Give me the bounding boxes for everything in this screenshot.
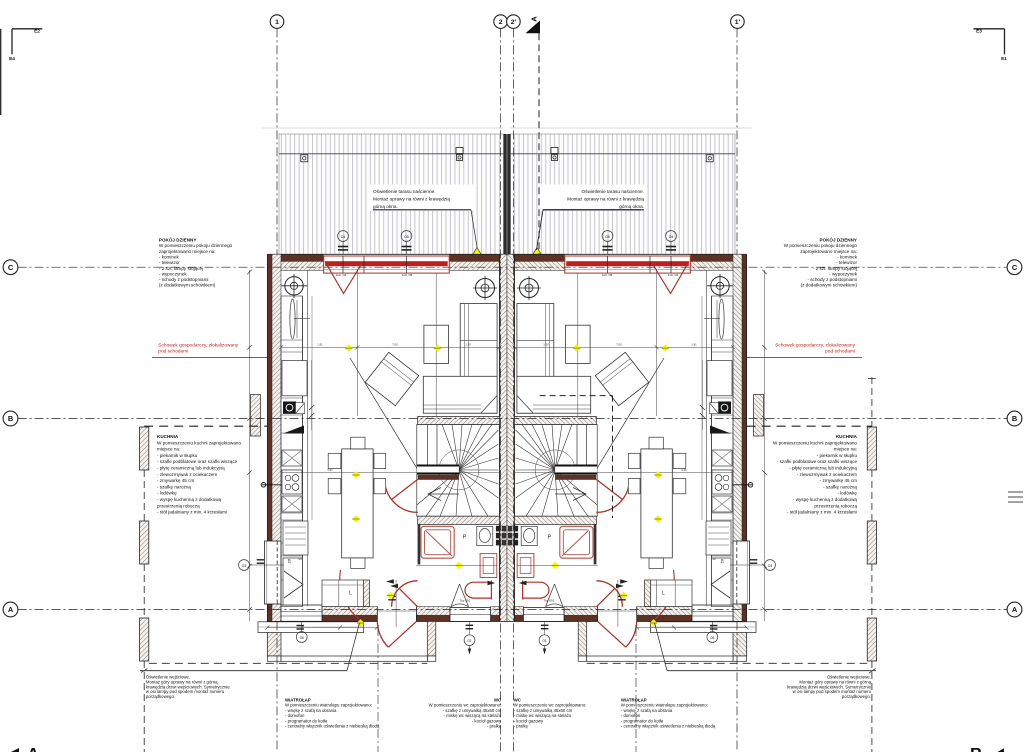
svg-text:7.00: 7.00 bbox=[616, 343, 622, 347]
svg-text:- pralkę: - pralkę bbox=[514, 724, 529, 729]
svg-text:O5: O5 bbox=[404, 235, 409, 239]
svg-text:L: L bbox=[662, 591, 665, 597]
svg-text:B: B bbox=[970, 745, 982, 752]
svg-text:POKÓJ DZIENNY: POKÓJ DZIENNY bbox=[159, 236, 197, 243]
svg-text:Typ S01: Typ S01 bbox=[544, 599, 555, 603]
svg-text:przestrzenią roboczą: przestrzenią roboczą bbox=[814, 503, 857, 508]
svg-text:O1: O1 bbox=[467, 639, 471, 643]
svg-text:KUCHNIA: KUCHNIA bbox=[836, 434, 858, 439]
svg-text:- 2 szt. lampy stojącej: - 2 szt. lampy stojącej bbox=[159, 266, 203, 271]
svg-text:- wypoczynek: - wypoczynek bbox=[159, 271, 188, 276]
svg-text:górną okna.: górną okna. bbox=[373, 204, 398, 209]
svg-text:Schowek gospodarczy, zlokalizo: Schowek gospodarczy, zlokalizowany bbox=[775, 343, 855, 349]
svg-text:Montaż oprawy na równi z krawę: Montaż oprawy na równi z krawędzią bbox=[373, 196, 450, 201]
svg-text:O6: O6 bbox=[710, 636, 714, 640]
svg-text:pod schodami: pod schodami bbox=[825, 349, 855, 355]
svg-text:E1: E1 bbox=[1001, 56, 1007, 62]
svg-text:- płytę ceramiczną lub indukcy: - płytę ceramiczną lub indukcyjną bbox=[789, 466, 857, 471]
svg-text:A: A bbox=[530, 16, 539, 22]
svg-text:- stół jadalniany z min. 4 krz: - stół jadalniany z min. 4 krzesłami bbox=[787, 510, 857, 515]
svg-text:ZM: ZM bbox=[288, 558, 292, 563]
svg-text:Typ S01: Typ S01 bbox=[460, 599, 471, 603]
svg-text:A: A bbox=[8, 605, 14, 614]
svg-text:2: 2 bbox=[499, 19, 503, 26]
svg-text:- piekarnik w słupku: - piekarnik w słupku bbox=[157, 453, 198, 458]
svg-text:(z dodatkowym schowkiem): (z dodatkowym schowkiem) bbox=[801, 283, 858, 288]
svg-text:B: B bbox=[8, 414, 13, 423]
svg-text:O5: O5 bbox=[605, 235, 610, 239]
svg-text:- szafki podblatowe oraz szafk: - szafki podblatowe oraz szafki wiszące bbox=[157, 459, 238, 464]
svg-text:1': 1' bbox=[735, 19, 741, 26]
svg-text:1.50: 1.50 bbox=[543, 343, 549, 347]
svg-text:1szt. O5: 1szt. O5 bbox=[602, 273, 613, 277]
svg-text:- lodówkę: - lodówkę bbox=[837, 491, 857, 496]
svg-text:Oświetlenie tarasu naścienne.: Oświetlenie tarasu naścienne. bbox=[373, 189, 436, 194]
svg-text:- zlewozmywak z ociekaczem: - zlewozmywak z ociekaczem bbox=[157, 472, 217, 477]
svg-text:O3: O3 bbox=[242, 564, 247, 568]
svg-text:zaprojektowano miejsce na:: zaprojektowano miejsce na: bbox=[159, 249, 216, 254]
svg-text:- kominek: - kominek bbox=[837, 254, 858, 259]
svg-text:- szafkę narożną: - szafkę narożną bbox=[157, 484, 191, 489]
svg-text:- płytę ceramiczną lub indukcy: - płytę ceramiczną lub indukcyjną bbox=[157, 466, 225, 471]
svg-text:pod schodami: pod schodami bbox=[158, 349, 188, 355]
svg-text:- zlewozmywak z ociekaczem: - zlewozmywak z ociekaczem bbox=[797, 472, 857, 477]
svg-text:O4: O4 bbox=[341, 235, 346, 239]
svg-text:E4: E4 bbox=[9, 56, 15, 62]
svg-text:- lodówkę: - lodówkę bbox=[157, 491, 177, 496]
svg-text:POKÓJ DZIENNY: POKÓJ DZIENNY bbox=[819, 236, 857, 243]
svg-text:- piekarnik w słupku: - piekarnik w słupku bbox=[817, 453, 858, 458]
svg-text:- wyspę kuchenną z dodatkową: - wyspę kuchenną z dodatkową bbox=[793, 497, 858, 502]
svg-text:górną okna.: górną okna. bbox=[619, 204, 644, 209]
svg-text:1: 1 bbox=[275, 19, 279, 26]
svg-text:- wyspę kuchenną z dodatkową: - wyspę kuchenną z dodatkową bbox=[157, 497, 222, 502]
svg-text:miejsce na:: miejsce na: bbox=[834, 447, 857, 452]
svg-text:- schody z podstopniami: - schody z podstopniami bbox=[807, 277, 857, 282]
svg-text:90: 90 bbox=[298, 557, 302, 561]
svg-text:- stół jadalniany z min. 4 krz: - stół jadalniany z min. 4 krzesłami bbox=[157, 510, 227, 515]
svg-text:Montaż oprawy na równi z krawę: Montaż oprawy na równi z krawędzią bbox=[567, 196, 644, 201]
svg-text:C: C bbox=[1012, 263, 1018, 272]
svg-text:(z dodatkowym schowkiem): (z dodatkowym schowkiem) bbox=[159, 283, 216, 288]
svg-text:przestrzenią roboczą: przestrzenią roboczą bbox=[157, 503, 200, 508]
svg-text:W pomieszczeniu kuchni zaproje: W pomieszczeniu kuchni zaprojektowano bbox=[157, 440, 241, 445]
svg-text:E3: E3 bbox=[976, 29, 982, 35]
svg-text:1.81: 1.81 bbox=[691, 343, 697, 347]
svg-text:E2: E2 bbox=[34, 29, 40, 35]
svg-text:O4: O4 bbox=[669, 235, 674, 239]
svg-text:- centralny włącznik oświetlen: - centralny włącznik oświetlenia z niebi… bbox=[285, 724, 380, 729]
svg-text:A: A bbox=[27, 745, 39, 752]
svg-text:1szt. O5: 1szt. O5 bbox=[402, 273, 413, 277]
svg-text:- szafki podblatowe oraz szafk: - szafki podblatowe oraz szafki wiszące bbox=[777, 459, 858, 464]
svg-text:- pralkę: - pralkę bbox=[487, 724, 502, 729]
svg-text:W pomieszczeniu pokoju dzienne: W pomieszczeniu pokoju dziennego bbox=[784, 243, 858, 248]
svg-text:2': 2' bbox=[511, 19, 517, 26]
svg-text:W pomieszczeniu pokoju dzienne: W pomieszczeniu pokoju dziennego bbox=[159, 243, 233, 248]
svg-text:- telewizor: - telewizor bbox=[159, 260, 180, 265]
svg-text:1.50: 1.50 bbox=[465, 343, 471, 347]
svg-text:1szt. O4: 1szt. O4 bbox=[668, 273, 679, 277]
svg-text:O3: O3 bbox=[768, 564, 773, 568]
svg-text:7.00: 7.00 bbox=[392, 343, 398, 347]
svg-text:A: A bbox=[1012, 605, 1018, 614]
svg-text:porządkowego.: porządkowego. bbox=[842, 694, 871, 699]
svg-text:1.81: 1.81 bbox=[317, 343, 323, 347]
svg-text:- zmywarkę 45 cm: - zmywarkę 45 cm bbox=[820, 478, 857, 483]
svg-text:C: C bbox=[8, 263, 14, 272]
svg-text:- 2 szt. lampy stojącej: - 2 szt. lampy stojącej bbox=[813, 266, 857, 271]
svg-text:- schody z podstopniami: - schody z podstopniami bbox=[159, 277, 209, 282]
svg-text:miejsce na:: miejsce na: bbox=[157, 447, 180, 452]
svg-text:90: 90 bbox=[712, 557, 716, 561]
svg-text:- wypoczynek: - wypoczynek bbox=[829, 271, 858, 276]
svg-text:O6: O6 bbox=[300, 636, 304, 640]
svg-text:- zmywarkę 45 cm: - zmywarkę 45 cm bbox=[157, 478, 194, 483]
svg-text:ZM: ZM bbox=[721, 558, 725, 563]
svg-text:3.31: 3.31 bbox=[681, 468, 687, 472]
svg-text:KUCHNIA: KUCHNIA bbox=[157, 434, 179, 439]
svg-text:1szt. O4: 1szt. O4 bbox=[336, 273, 347, 277]
svg-text:- telewizor: - telewizor bbox=[836, 260, 857, 265]
svg-text:W pomieszczeniu kuchni zaproje: W pomieszczeniu kuchni zaprojektowano bbox=[773, 440, 857, 445]
svg-text:3.31: 3.31 bbox=[327, 468, 333, 472]
svg-text:- kominek: - kominek bbox=[159, 254, 180, 259]
svg-text:L: L bbox=[349, 591, 352, 597]
svg-text:zaprojektowano miejsce na:: zaprojektowano miejsce na: bbox=[800, 249, 857, 254]
svg-text:- centralny włącznik oświetlen: - centralny włącznik oświetlenia z niebi… bbox=[621, 724, 716, 729]
svg-text:- szafkę narożną: - szafkę narożną bbox=[823, 484, 857, 489]
svg-text:O1: O1 bbox=[542, 639, 546, 643]
svg-text:porządkowego.: porządkowego. bbox=[146, 694, 175, 699]
svg-text:Oświetlenie tarasu naścienne.: Oświetlenie tarasu naścienne. bbox=[581, 189, 644, 194]
svg-text:B: B bbox=[1012, 414, 1017, 423]
svg-text:Schowek gospodarczy, zlokalizo: Schowek gospodarczy, zlokalizowany bbox=[158, 343, 238, 349]
